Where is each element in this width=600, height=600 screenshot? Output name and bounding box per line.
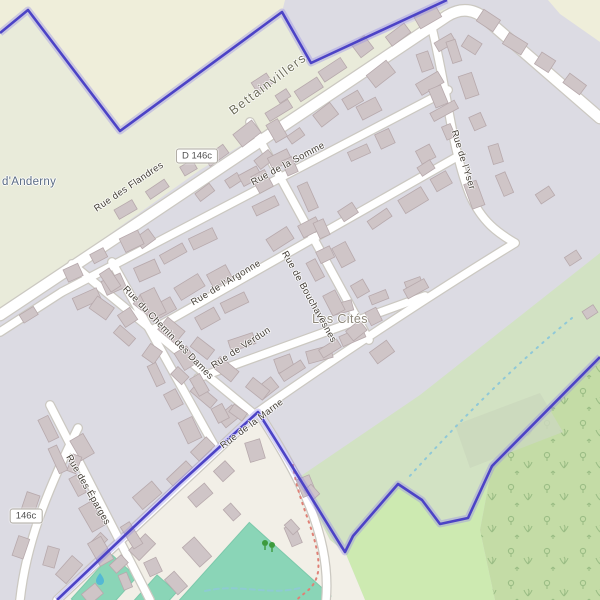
map-viewport[interactable]: Bettainvillerse d'AndernyLes CitésRue de… [0, 0, 600, 600]
map-canvas [0, 0, 600, 600]
